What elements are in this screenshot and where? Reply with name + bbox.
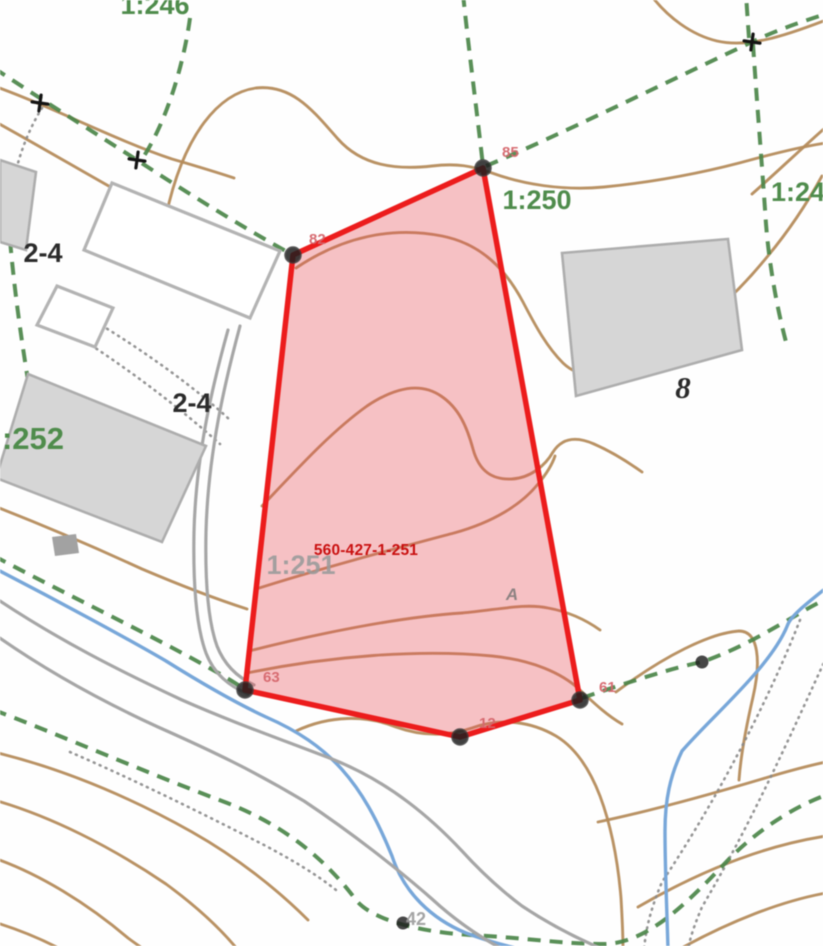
building-fragment-top-left	[0, 160, 36, 250]
parcel-vertex-marker[interactable]	[452, 729, 468, 745]
map-label: 1:24	[771, 177, 823, 207]
building-shed-small	[52, 534, 79, 556]
map-label: 42	[406, 909, 426, 929]
vertex-number-label: 63	[263, 669, 280, 686]
building-outline-large	[84, 183, 280, 318]
vertex-number-label: 12	[479, 715, 496, 732]
parcel-vertex-marker[interactable]	[475, 160, 491, 176]
map-label: 1:246	[120, 0, 189, 20]
map-canvas[interactable]: 8582631261560-427-1-2511:2461:2501:24:25…	[0, 0, 823, 946]
parcel-vertex-marker[interactable]	[285, 247, 301, 263]
vertex-number-label: 61	[599, 679, 616, 696]
map-label: 1:250	[502, 185, 571, 215]
map-label: A	[505, 585, 518, 604]
map-label: 1:251	[266, 550, 335, 580]
vertex-number-label: 82	[309, 231, 326, 248]
map-label: :252	[2, 421, 64, 456]
boundary-point-marker	[696, 656, 709, 669]
parcel-vertex-marker[interactable]	[572, 692, 588, 708]
map-label: 2-4	[172, 388, 211, 418]
map-label: 2-4	[23, 238, 62, 268]
building-gray-right	[562, 239, 742, 396]
building-outline-small	[37, 286, 113, 347]
map-label: 8	[675, 370, 691, 405]
boundary-cross-marker	[743, 33, 761, 51]
vertex-number-label: 85	[502, 144, 519, 161]
boundary-cross-marker	[31, 94, 49, 112]
parcel-vertex-marker[interactable]	[237, 682, 253, 698]
